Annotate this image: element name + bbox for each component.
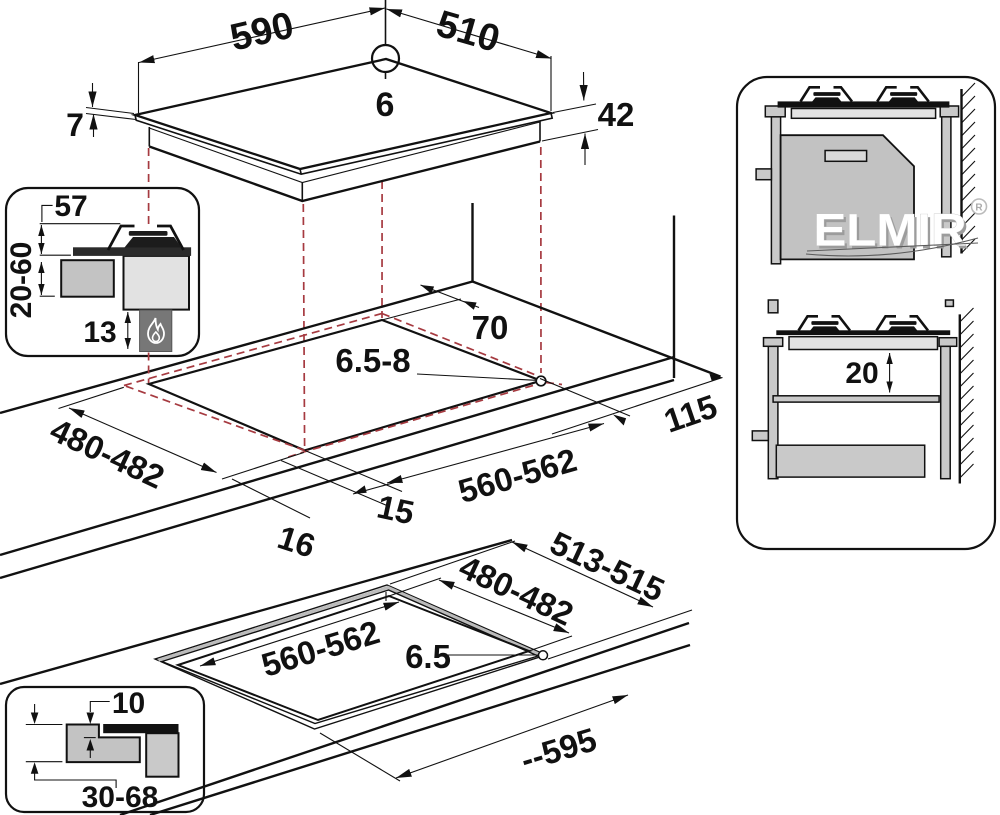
svg-text:13: 13 <box>83 316 116 349</box>
svg-text:15: 15 <box>374 488 418 532</box>
svg-text:57: 57 <box>54 190 87 223</box>
svg-text:30-68: 30-68 <box>82 781 159 814</box>
svg-text:7: 7 <box>66 107 84 143</box>
svg-text:70: 70 <box>472 309 509 346</box>
svg-text:ELMIR: ELMIR <box>814 205 967 256</box>
svg-text:20: 20 <box>845 357 878 390</box>
svg-text:10: 10 <box>112 687 145 720</box>
svg-text:6: 6 <box>376 86 395 124</box>
svg-text:6.5: 6.5 <box>405 638 451 675</box>
svg-text:42: 42 <box>598 96 635 133</box>
svg-text:R: R <box>975 203 983 214</box>
svg-text:6.5-8: 6.5-8 <box>335 342 410 379</box>
svg-text:20-60: 20-60 <box>5 242 38 319</box>
